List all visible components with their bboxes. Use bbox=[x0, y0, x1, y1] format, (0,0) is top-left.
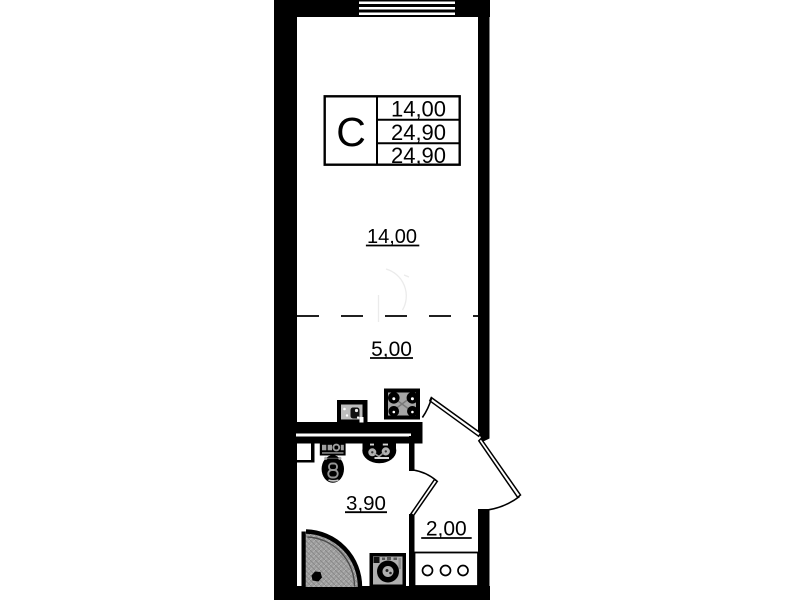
svg-text:14,00: 14,00 bbox=[391, 97, 446, 122]
svg-text:С: С bbox=[336, 109, 366, 155]
svg-text:24,90: 24,90 bbox=[391, 143, 446, 168]
svg-text:24,90: 24,90 bbox=[391, 120, 446, 145]
svg-text:2,00: 2,00 bbox=[426, 518, 467, 541]
